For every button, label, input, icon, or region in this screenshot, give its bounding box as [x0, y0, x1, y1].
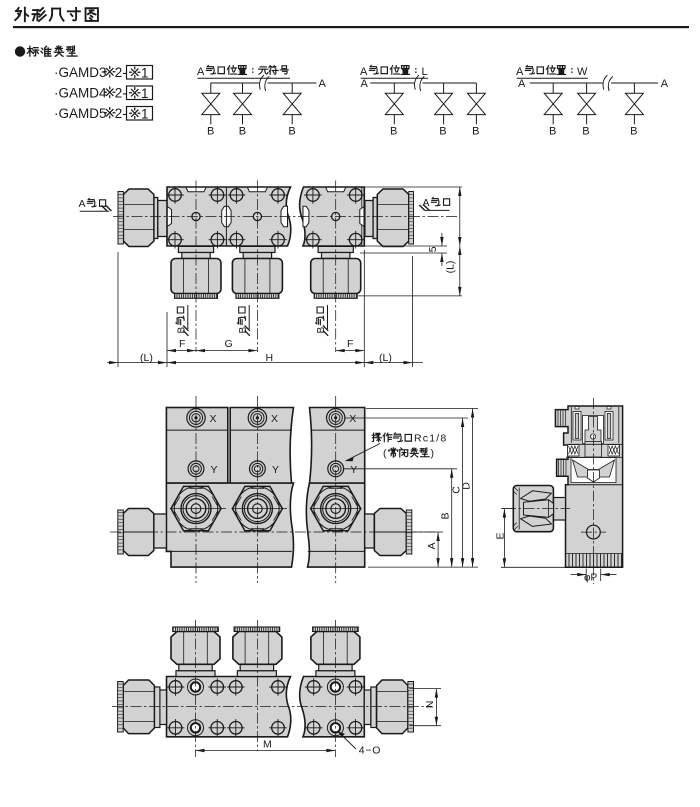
svg-text:B: B: [288, 126, 295, 138]
svg-text:Rc1/8: Rc1/8: [414, 433, 447, 445]
svg-text:N: N: [424, 701, 436, 709]
svg-text:B: B: [439, 126, 446, 138]
svg-text:A: A: [319, 78, 327, 90]
svg-text:A: A: [360, 66, 368, 78]
svg-text:G: G: [225, 338, 233, 350]
svg-text:A: A: [426, 542, 438, 549]
svg-text:1: 1: [141, 66, 149, 81]
svg-text:X: X: [271, 413, 278, 425]
svg-text:(L): (L): [379, 352, 392, 364]
svg-text:X: X: [349, 413, 356, 425]
svg-text:D: D: [460, 482, 472, 490]
svg-text:B: B: [472, 126, 479, 138]
svg-text:Y: Y: [350, 464, 357, 476]
svg-text:(L): (L): [140, 352, 153, 364]
svg-text:1: 1: [141, 86, 149, 101]
svg-text:M: M: [263, 739, 272, 751]
svg-text:F: F: [347, 338, 353, 350]
svg-text:F: F: [179, 338, 185, 350]
svg-text:): ): [431, 448, 435, 460]
svg-text:1: 1: [141, 107, 149, 122]
svg-text:2-: 2-: [115, 86, 127, 101]
svg-text:H: H: [266, 352, 274, 364]
svg-text:Y: Y: [211, 464, 218, 476]
svg-text:A: A: [361, 78, 369, 90]
svg-text:Y: Y: [272, 464, 279, 476]
svg-text:E: E: [495, 532, 507, 539]
svg-text:B: B: [207, 126, 214, 138]
svg-text:B: B: [390, 126, 397, 138]
svg-text:B: B: [439, 512, 451, 519]
svg-text:·GAMD4: ·GAMD4: [54, 86, 107, 101]
svg-text:A: A: [197, 66, 205, 78]
svg-text:X: X: [210, 413, 217, 425]
svg-text:A: A: [79, 198, 86, 210]
svg-text:(: (: [383, 448, 387, 460]
svg-text:(L): (L): [445, 261, 457, 274]
svg-text:B: B: [630, 126, 637, 138]
svg-text:5: 5: [427, 246, 439, 252]
svg-text:A: A: [516, 66, 524, 78]
svg-text:B: B: [549, 126, 556, 138]
svg-text:·GAMD5: ·GAMD5: [54, 106, 107, 121]
svg-text:W: W: [577, 66, 588, 78]
svg-text:·GAMD3: ·GAMD3: [54, 65, 107, 80]
svg-text:B: B: [582, 126, 589, 138]
svg-text:L: L: [422, 66, 428, 78]
svg-text:B: B: [239, 126, 246, 138]
svg-text:2-: 2-: [115, 65, 127, 80]
svg-text:4−O: 4−O: [359, 745, 382, 757]
svg-text:φP: φP: [584, 573, 597, 584]
svg-text:2-: 2-: [115, 106, 127, 121]
svg-text:A: A: [661, 78, 669, 90]
svg-text:A: A: [518, 78, 526, 90]
